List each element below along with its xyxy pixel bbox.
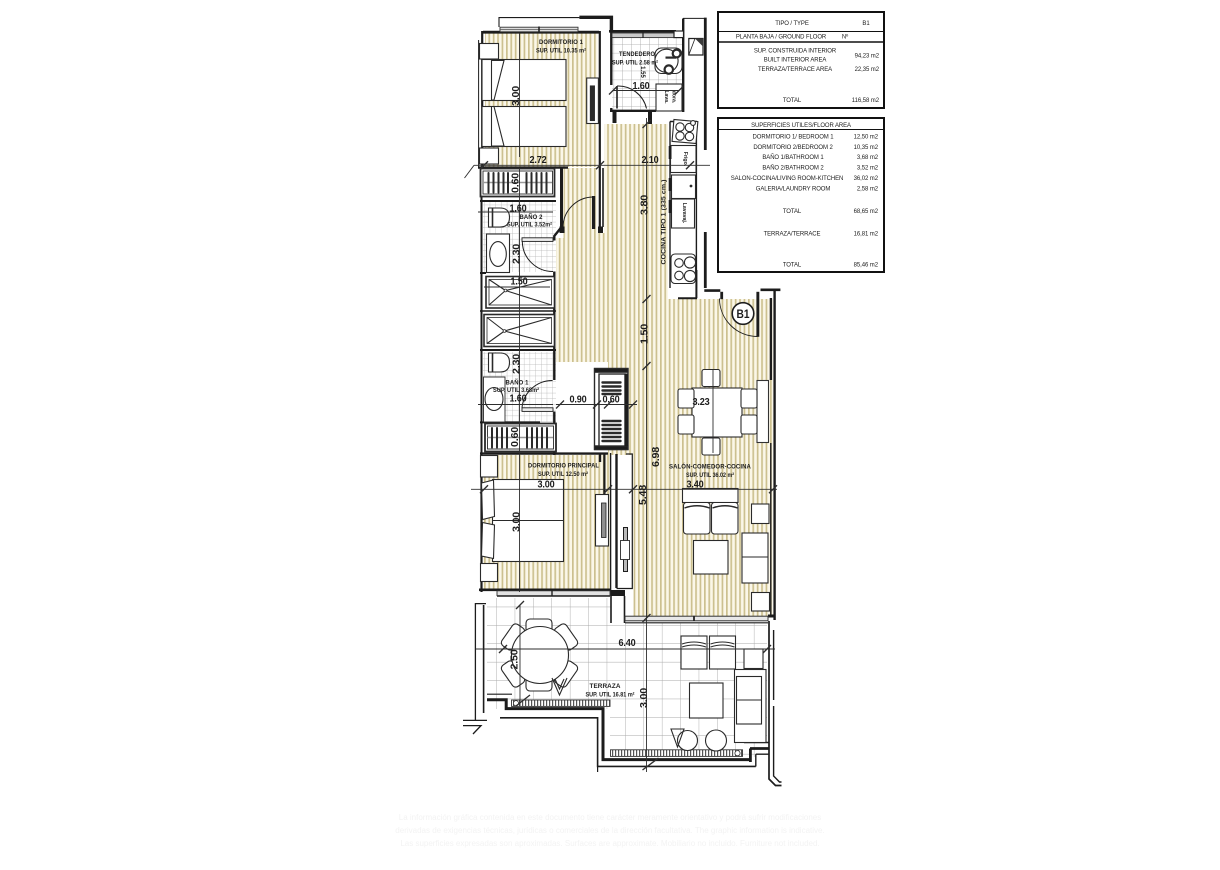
svg-text:10,35 m2: 10,35 m2 <box>854 145 879 151</box>
svg-text:36,02 m2: 36,02 m2 <box>854 176 879 182</box>
svg-text:3.00: 3.00 <box>511 85 522 106</box>
svg-text:3.00: 3.00 <box>639 687 650 708</box>
svg-text:Lavavaj.: Lavavaj. <box>681 203 687 224</box>
svg-text:La información gráfica conteni: La información gráfica contenida en este… <box>399 813 821 822</box>
svg-text:116,58 m2: 116,58 m2 <box>852 98 880 104</box>
svg-text:SUP. UTIL 2.58 m²: SUP. UTIL 2.58 m² <box>612 60 658 67</box>
svg-text:1.50: 1.50 <box>511 277 529 288</box>
svg-text:DORMITORIO 2/BEDROOM 2: DORMITORIO 2/BEDROOM 2 <box>753 145 833 151</box>
svg-text:SUP. UTIL 3.52m²: SUP. UTIL 3.52m² <box>507 222 552 229</box>
svg-text:DORMITORIO PRINCIPAL: DORMITORIO PRINCIPAL <box>528 463 599 470</box>
svg-text:SUP. UTIL 12.50 m²: SUP. UTIL 12.50 m² <box>538 471 588 478</box>
svg-text:TOTAL: TOTAL <box>783 263 802 269</box>
svg-text:6.98: 6.98 <box>651 446 662 467</box>
svg-text:BAÑO 2/BATHROOM 2: BAÑO 2/BATHROOM 2 <box>762 165 824 172</box>
svg-text:PLANTA BAJA / GROUND FLOOR: PLANTA BAJA / GROUND FLOOR <box>736 35 827 41</box>
svg-text:0.60: 0.60 <box>510 426 521 447</box>
svg-text:5.48: 5.48 <box>638 484 649 505</box>
svg-text:2.72: 2.72 <box>530 155 548 166</box>
svg-text:94,23 m2: 94,23 m2 <box>855 54 880 60</box>
svg-text:B1: B1 <box>862 21 870 27</box>
svg-text:2.30: 2.30 <box>512 353 523 374</box>
svg-text:3.00: 3.00 <box>512 511 523 532</box>
svg-text:0.60: 0.60 <box>603 395 621 406</box>
svg-text:DORMITORIO 1: DORMITORIO 1 <box>539 39 583 46</box>
svg-text:22,35 m2: 22,35 m2 <box>855 67 880 73</box>
svg-text:BAÑO 1: BAÑO 1 <box>506 378 529 387</box>
svg-text:SUP. UTIL 3.68m²: SUP. UTIL 3.68m² <box>493 387 539 394</box>
svg-text:Nº: Nº <box>842 34 849 41</box>
svg-text:Lava.: Lava. <box>663 90 669 104</box>
svg-text:3.40: 3.40 <box>687 480 705 491</box>
svg-text:derivadas de exigencias técnic: derivadas de exigencias técnicas, jurídi… <box>395 826 824 835</box>
svg-text:SUPERFICIES UTILES/FLOOR AREA: SUPERFICIES UTILES/FLOOR AREA <box>751 123 851 129</box>
svg-text:SUP. UTIL 16.81 m²: SUP. UTIL 16.81 m² <box>586 692 635 699</box>
svg-text:0.90: 0.90 <box>570 395 588 406</box>
svg-text:TIPO / TYPE: TIPO / TYPE <box>775 21 809 27</box>
svg-text:1.60: 1.60 <box>633 81 651 92</box>
svg-text:SALON-COCINA/LIVING ROOM-KITCH: SALON-COCINA/LIVING ROOM-KITCHEN <box>731 176 843 182</box>
svg-text:COCINA TIPO 1 (335 cm.): COCINA TIPO 1 (335 cm.) <box>661 180 668 265</box>
svg-text:TENDEDERO: TENDEDERO <box>619 51 655 58</box>
svg-text:BAÑO 2: BAÑO 2 <box>520 212 543 221</box>
svg-text:16,81 m2: 16,81 m2 <box>854 232 879 238</box>
svg-text:SALÓN-COMEDOR-COCINA: SALÓN-COMEDOR-COCINA <box>669 462 751 471</box>
svg-text:2.10: 2.10 <box>642 155 660 166</box>
svg-text:0.60: 0.60 <box>511 172 522 193</box>
svg-text:3.00: 3.00 <box>538 480 556 491</box>
svg-text:B1: B1 <box>737 309 751 321</box>
svg-text:DORMITORIO 1/ BEDROOM 1: DORMITORIO 1/ BEDROOM 1 <box>753 135 835 141</box>
svg-text:Frigo.: Frigo. <box>682 152 688 167</box>
svg-text:dora.: dora. <box>671 91 677 104</box>
svg-text:Las superficies expresadas son: Las superficies expresadas son aproximad… <box>400 839 819 848</box>
svg-text:2,58 m2: 2,58 m2 <box>857 187 879 193</box>
svg-text:1.60: 1.60 <box>510 394 528 405</box>
svg-text:2.50: 2.50 <box>510 649 521 670</box>
svg-text:SUP. UTIL 10.35 m²: SUP. UTIL 10.35 m² <box>536 48 586 55</box>
svg-text:GALERIA/LAUNDRY ROOM: GALERIA/LAUNDRY ROOM <box>756 187 831 193</box>
svg-text:1.50: 1.50 <box>640 323 651 344</box>
svg-text:12,50 m2: 12,50 m2 <box>854 135 879 141</box>
svg-text:3,68 m2: 3,68 m2 <box>857 155 879 161</box>
svg-text:SUP. CONSTRUIDA INTERIOR: SUP. CONSTRUIDA INTERIOR <box>754 49 837 55</box>
svg-text:TERRAZA: TERRAZA <box>590 683 621 690</box>
svg-text:TERRAZA/TERRACE AREA: TERRAZA/TERRACE AREA <box>758 67 832 73</box>
svg-text:BUILT INTERIOR AREA: BUILT INTERIOR AREA <box>764 58 827 64</box>
svg-text:85,46 m2: 85,46 m2 <box>854 263 879 269</box>
svg-text:2.30: 2.30 <box>512 243 523 264</box>
svg-text:SUP. UTIL 36.02 m²: SUP. UTIL 36.02 m² <box>686 472 734 479</box>
svg-text:3.23: 3.23 <box>693 397 711 408</box>
svg-text:1.60: 1.60 <box>510 204 528 215</box>
svg-text:TOTAL: TOTAL <box>783 98 802 104</box>
svg-text:3,52 m2: 3,52 m2 <box>857 166 879 172</box>
svg-text:3.80: 3.80 <box>640 194 651 215</box>
svg-text:6.40: 6.40 <box>619 638 637 649</box>
svg-text:TOTAL: TOTAL <box>783 209 802 215</box>
svg-text:1.55: 1.55 <box>639 66 645 78</box>
svg-text:TERRAZA/TERRACE: TERRAZA/TERRACE <box>764 232 821 238</box>
svg-text:68,65 m2: 68,65 m2 <box>854 209 879 215</box>
svg-text:BAÑO 1/BATHROOM 1: BAÑO 1/BATHROOM 1 <box>762 154 824 161</box>
